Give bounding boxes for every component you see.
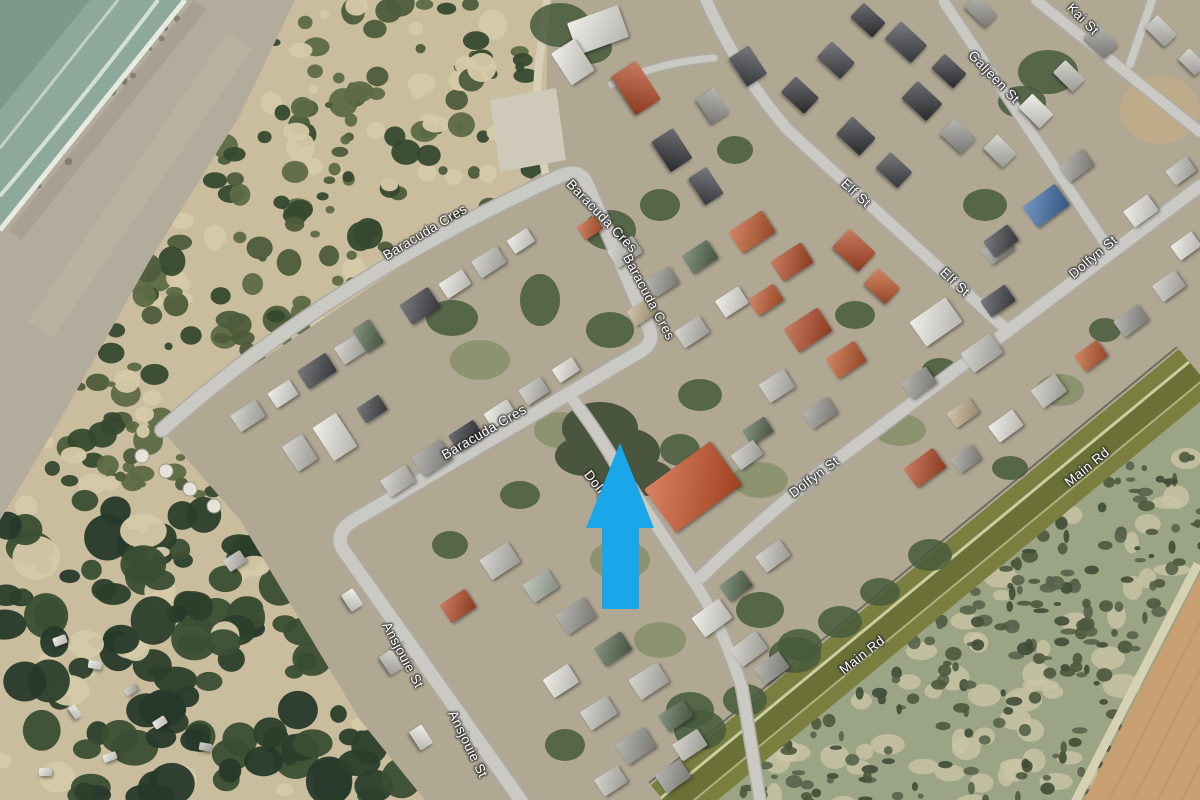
satellite-map[interactable]: Baracuda CresBaracuda CresBaracuda CresB…: [0, 0, 1200, 800]
up-arrow-annotation: [586, 443, 654, 609]
annotation-layer: [0, 0, 1200, 800]
